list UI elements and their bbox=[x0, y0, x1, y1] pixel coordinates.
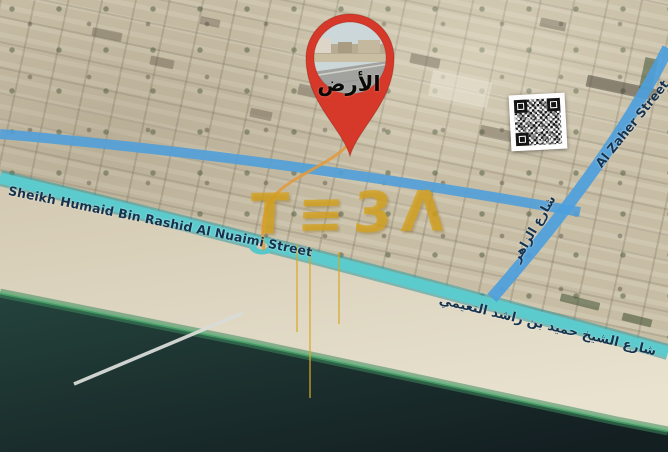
pin-label: الأرض bbox=[316, 72, 382, 96]
qr-code bbox=[509, 93, 568, 152]
qr-code-pattern bbox=[514, 98, 562, 146]
qr-finder-icon bbox=[547, 98, 561, 112]
qr-finder-icon bbox=[516, 133, 530, 147]
qr-finder-icon bbox=[514, 100, 528, 114]
map-canvas: Sheikh Humaid Bin Rashid Al Nuaimi Stree… bbox=[0, 0, 668, 452]
